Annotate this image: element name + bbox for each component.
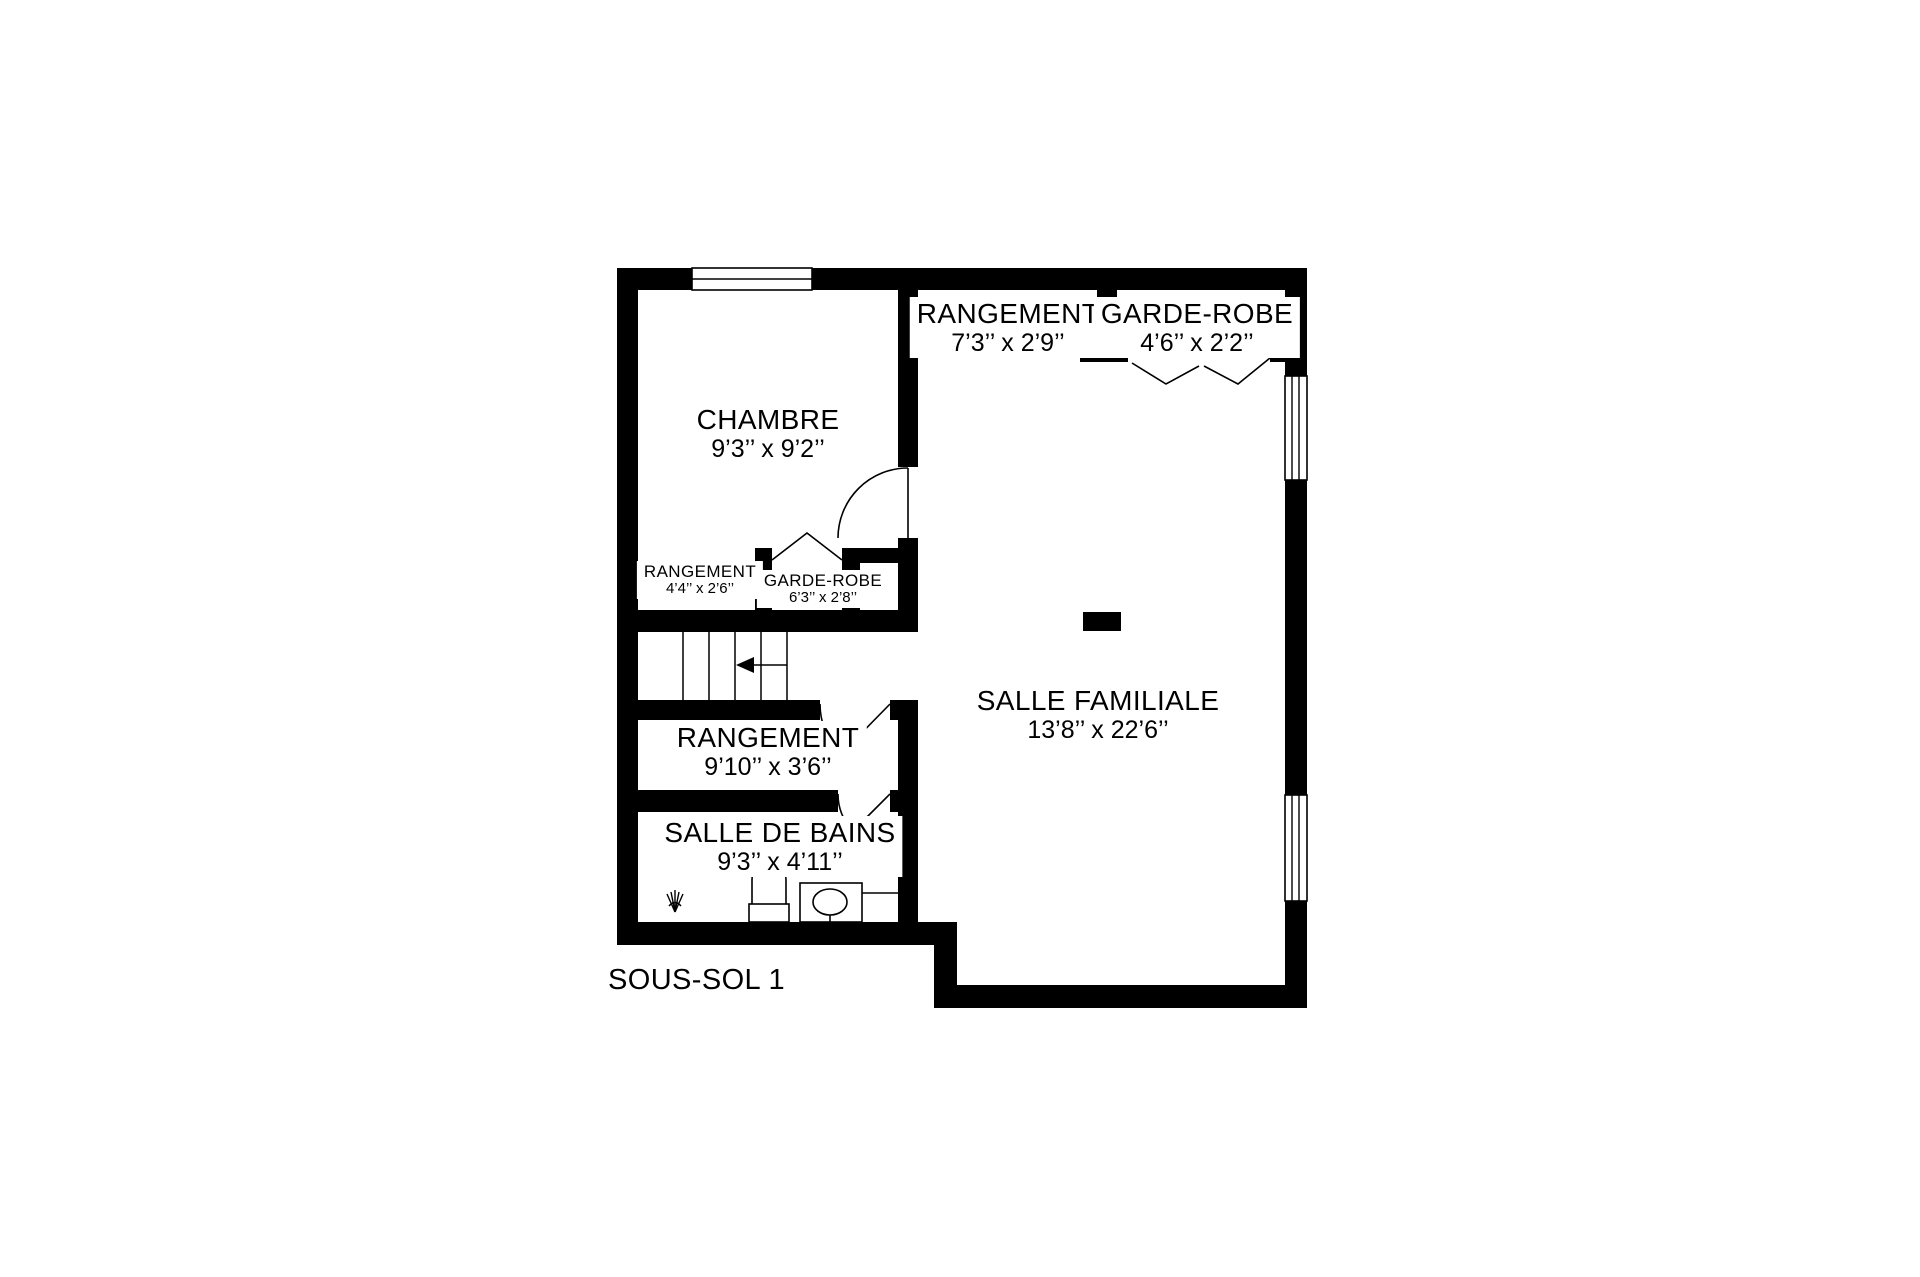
room-name: CHAMBRE (697, 404, 840, 435)
room-name: RANGEMENT (917, 298, 1100, 329)
room-label-salle-familiale: SALLE FAMILIALE 13’8’’ x 22’6’’ (970, 684, 1227, 745)
room-label-rangement-bas: RANGEMENT 9’10’’ x 3’6’’ (670, 721, 867, 782)
room-name: SALLE FAMILIALE (977, 685, 1220, 716)
window-icon-right-upper (1285, 376, 1307, 480)
room-label-salle-de-bains: SALLE DE BAINS 9’3’’ x 4’11’’ (657, 816, 902, 877)
room-dimensions: 13’8’’ x 22’6’’ (977, 716, 1220, 744)
door-swing-icon-chambre (838, 468, 908, 538)
room-name: RANGEMENT (644, 562, 756, 581)
room-name: GARDE-ROBE (1101, 298, 1293, 329)
room-name: SALLE DE BAINS (664, 817, 895, 848)
room-dimensions: 6’3’’ x 2’8’’ (764, 590, 882, 607)
shower-head-icon (667, 890, 683, 912)
room-dimensions: 9’10’’ x 3’6’’ (677, 753, 860, 781)
room-dimensions: 4’6’’ x 2’2’’ (1101, 329, 1293, 357)
floorplan-drawing (0, 0, 1920, 1277)
room-label-garde-robe-chambre: GARDE-ROBE 6’3’’ x 2’8’’ (757, 570, 889, 608)
window-icon-right-lower (1285, 795, 1307, 901)
room-label-garde-robe-haut: GARDE-ROBE 4’6’’ x 2’2’’ (1094, 297, 1300, 358)
room-dimensions: 4’4’’ x 2’6’’ (644, 581, 756, 598)
room-label-rangement-haut: RANGEMENT 7’3’’ x 2’9’’ (910, 297, 1107, 358)
room-label-rangement-chambre: RANGEMENT 4’4’’ x 2’6’’ (637, 561, 763, 599)
sink-vanity-icon (800, 883, 898, 926)
bifold-door-icon-garde-robe-chambre (772, 533, 842, 560)
room-name: RANGEMENT (677, 722, 860, 753)
bifold-door-icon-garde-robe-haut (1132, 358, 1270, 384)
room-dimensions: 9’3’’ x 4’11’’ (664, 848, 895, 876)
window-icon-top (692, 268, 812, 290)
outer-walls (617, 268, 1307, 1008)
room-name: GARDE-ROBE (764, 571, 882, 590)
room-dimensions: 9’3’’ x 9’2’’ (697, 435, 840, 463)
room-dimensions: 7’3’’ x 2’9’’ (917, 329, 1100, 357)
floor-title: SOUS-SOL 1 (608, 964, 785, 997)
support-post (1083, 612, 1121, 631)
floorplan-canvas: CHAMBRE 9’3’’ x 9’2’’ RANGEMENT 7’3’’ x … (0, 0, 1920, 1277)
room-label-chambre: CHAMBRE 9’3’’ x 9’2’’ (690, 403, 847, 464)
stairs (683, 632, 787, 700)
